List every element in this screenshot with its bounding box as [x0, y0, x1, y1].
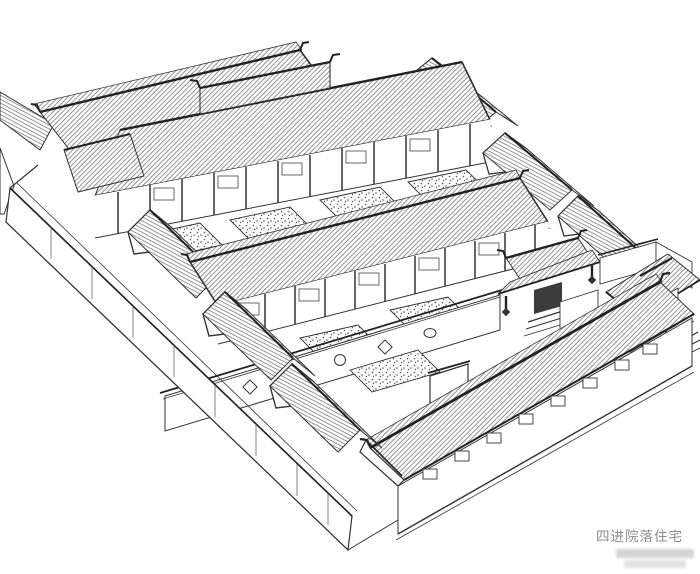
- caption-label: 四进院落住宅: [596, 525, 700, 545]
- photo-watermark: [614, 547, 698, 571]
- scanned-illustration-page: 四进院落住宅: [0, 0, 700, 574]
- courtyard-house-drawing: [0, 0, 700, 574]
